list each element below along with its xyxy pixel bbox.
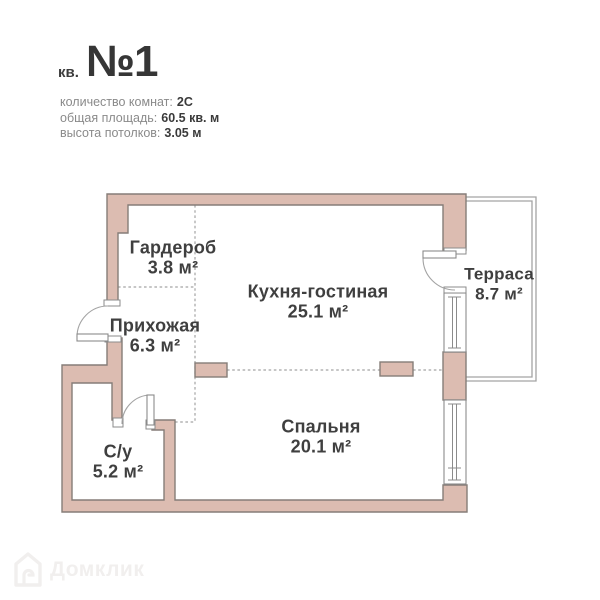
room-label-wardrobe: Гардероб 3.8 м² bbox=[130, 239, 217, 278]
window-kitchen-terrace bbox=[444, 293, 466, 352]
door-leaf bbox=[423, 251, 456, 258]
room-area: 6.3 м² bbox=[110, 336, 200, 356]
room-label-bedroom: Спальня 20.1 м² bbox=[281, 418, 360, 457]
terrace-door bbox=[423, 248, 466, 293]
wall-stub-right bbox=[380, 362, 413, 376]
watermark-text: Домклик bbox=[50, 558, 144, 582]
room-label-hallway: Прихожая 6.3 м² bbox=[110, 317, 200, 356]
room-area: 8.7 м² bbox=[464, 284, 534, 304]
room-area: 5.2 м² bbox=[93, 462, 144, 482]
room-area: 20.1 м² bbox=[281, 437, 360, 457]
door-jamb bbox=[104, 300, 120, 306]
door-leaf bbox=[147, 395, 154, 425]
room-name: Гардероб bbox=[130, 239, 217, 259]
room-name: Спальня bbox=[281, 418, 360, 438]
room-name: Терраса bbox=[464, 265, 534, 285]
wall-stub-left bbox=[195, 363, 227, 377]
room-name: Прихожая bbox=[110, 317, 200, 337]
domclick-logo-icon bbox=[12, 549, 44, 591]
door-leaf bbox=[77, 334, 108, 341]
wall-right-middle bbox=[443, 352, 466, 400]
window-frame bbox=[444, 293, 466, 352]
window-frame bbox=[444, 400, 466, 484]
room-name: С/у bbox=[93, 443, 144, 463]
room-label-terrace: Терраса 8.7 м² bbox=[464, 265, 534, 304]
door-swing-arc bbox=[77, 306, 108, 337]
room-name: Кухня-гостиная bbox=[248, 283, 389, 303]
room-area: 3.8 м² bbox=[130, 258, 217, 278]
window-bedroom-terrace bbox=[444, 400, 466, 484]
room-label-bathroom: С/у 5.2 м² bbox=[93, 443, 144, 482]
room-area: 25.1 м² bbox=[248, 302, 389, 322]
watermark: Домклик bbox=[12, 549, 144, 591]
room-label-kitchen-living: Кухня-гостиная 25.1 м² bbox=[248, 283, 389, 322]
door-swing-arc bbox=[423, 258, 455, 290]
